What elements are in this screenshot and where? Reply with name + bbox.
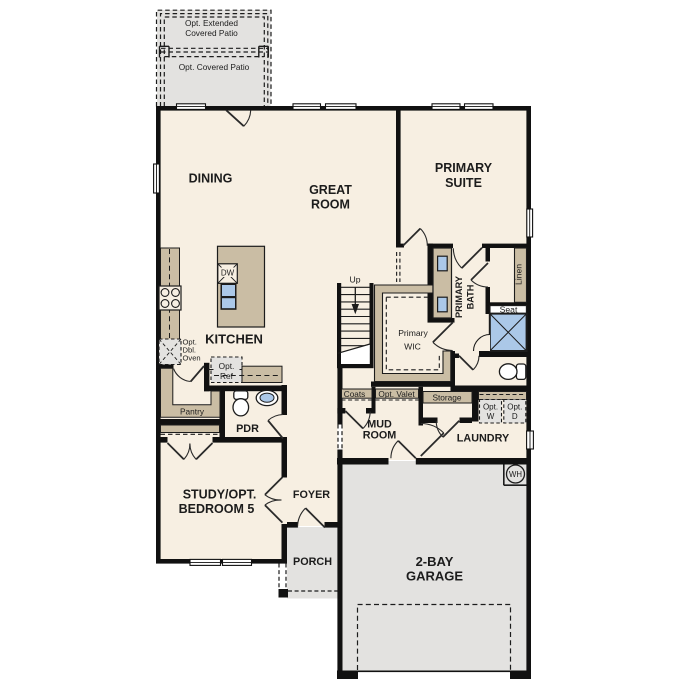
- svg-text:2-BAY: 2-BAY: [416, 554, 454, 569]
- svg-text:Opt.: Opt.: [483, 403, 498, 412]
- svg-text:GREAT: GREAT: [309, 183, 352, 197]
- svg-text:PDR: PDR: [236, 423, 259, 435]
- svg-text:WIC: WIC: [404, 342, 421, 352]
- svg-text:PRIMARY: PRIMARY: [435, 161, 493, 175]
- svg-text:PRIMARY: PRIMARY: [454, 276, 464, 318]
- svg-text:DINING: DINING: [189, 172, 233, 186]
- svg-text:Coats: Coats: [344, 390, 365, 399]
- svg-text:BEDROOM 5: BEDROOM 5: [179, 502, 255, 516]
- svg-text:Opt.: Opt.: [219, 361, 235, 371]
- svg-text:ROOM: ROOM: [363, 430, 397, 442]
- svg-text:Pantry: Pantry: [180, 407, 205, 417]
- svg-text:DW: DW: [221, 269, 235, 278]
- svg-text:Storage: Storage: [432, 393, 461, 403]
- svg-text:SUITE: SUITE: [445, 176, 482, 190]
- svg-text:PORCH: PORCH: [293, 556, 332, 568]
- svg-text:Opt. Valet: Opt. Valet: [378, 389, 415, 399]
- svg-text:BATH: BATH: [466, 284, 476, 309]
- svg-text:LAUNDRY: LAUNDRY: [457, 433, 510, 445]
- svg-text:GARAGE: GARAGE: [406, 569, 463, 584]
- svg-text:D: D: [512, 412, 518, 421]
- svg-text:FOYER: FOYER: [293, 489, 330, 501]
- svg-text:Opt. Extended: Opt. Extended: [185, 18, 238, 28]
- svg-text:STUDY/OPT.: STUDY/OPT.: [183, 488, 257, 502]
- svg-text:KITCHEN: KITCHEN: [205, 332, 263, 347]
- svg-text:Oven: Oven: [183, 354, 201, 363]
- svg-text:Covered Patio: Covered Patio: [185, 28, 238, 38]
- svg-text:Linen: Linen: [514, 264, 524, 285]
- svg-text:W: W: [487, 412, 495, 421]
- svg-text:WH: WH: [509, 470, 522, 479]
- svg-text:Primary: Primary: [398, 328, 428, 338]
- svg-text:Opt. Covered Patio: Opt. Covered Patio: [179, 62, 250, 72]
- svg-text:Opt.: Opt.: [507, 403, 522, 412]
- svg-text:ROOM: ROOM: [311, 198, 350, 212]
- svg-text:Up: Up: [350, 275, 361, 285]
